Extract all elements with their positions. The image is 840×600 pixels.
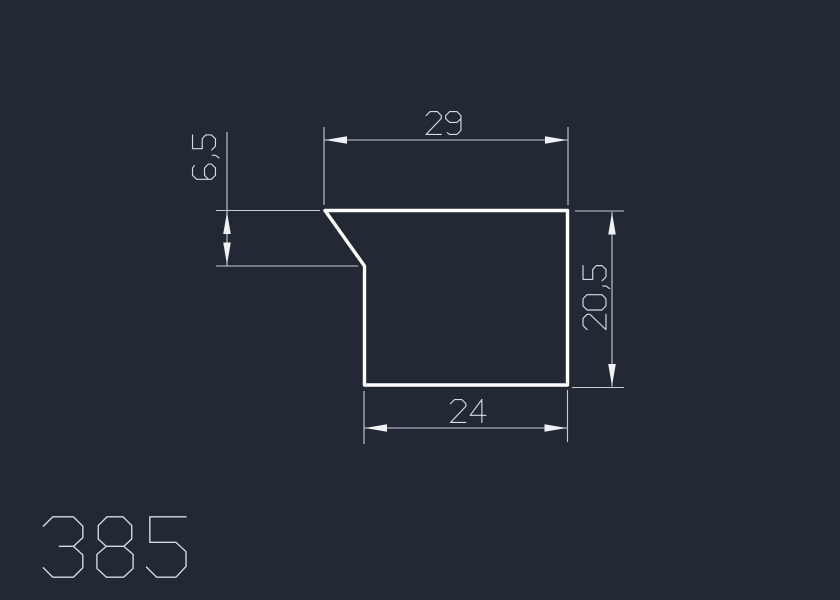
arrowhead bbox=[223, 212, 231, 234]
dimension-label-bottom-width bbox=[451, 400, 486, 423]
arrowhead bbox=[608, 213, 616, 235]
arrowhead bbox=[608, 364, 616, 386]
arrowhead bbox=[223, 243, 231, 265]
glyph-stroke bbox=[583, 266, 606, 281]
glyph-stroke bbox=[583, 295, 606, 310]
dimension-left-height bbox=[193, 132, 358, 266]
part-number-label bbox=[43, 517, 186, 577]
glyph-stroke bbox=[603, 286, 610, 289]
glyph-stroke bbox=[212, 155, 219, 158]
glyph-stroke bbox=[470, 400, 486, 416]
glyph-stroke bbox=[146, 517, 186, 577]
glyph-stroke bbox=[426, 112, 441, 135]
arrowhead bbox=[545, 424, 567, 432]
dimension-label-right-height bbox=[583, 266, 610, 330]
drawing-canvas: 385 bbox=[0, 0, 840, 600]
glyph-stroke bbox=[451, 400, 466, 423]
glyph-stroke bbox=[97, 517, 133, 577]
glyph-stroke bbox=[193, 164, 216, 179]
dimension-bottom-width bbox=[364, 390, 568, 444]
glyph-stroke bbox=[583, 314, 606, 329]
dimension-label-top-width bbox=[426, 112, 461, 135]
dimension-top-width bbox=[324, 112, 568, 205]
cad-drawing: 385 bbox=[0, 0, 840, 600]
dimension-label-left-height bbox=[193, 135, 220, 179]
glyph-stroke bbox=[446, 112, 461, 135]
profile-outline bbox=[325, 211, 568, 386]
dimension-right-height bbox=[572, 211, 624, 388]
glyph-stroke bbox=[43, 517, 83, 577]
arrowhead bbox=[325, 136, 347, 144]
arrowhead bbox=[365, 424, 387, 432]
arrowhead bbox=[545, 136, 567, 144]
glyph-stroke bbox=[193, 135, 216, 150]
